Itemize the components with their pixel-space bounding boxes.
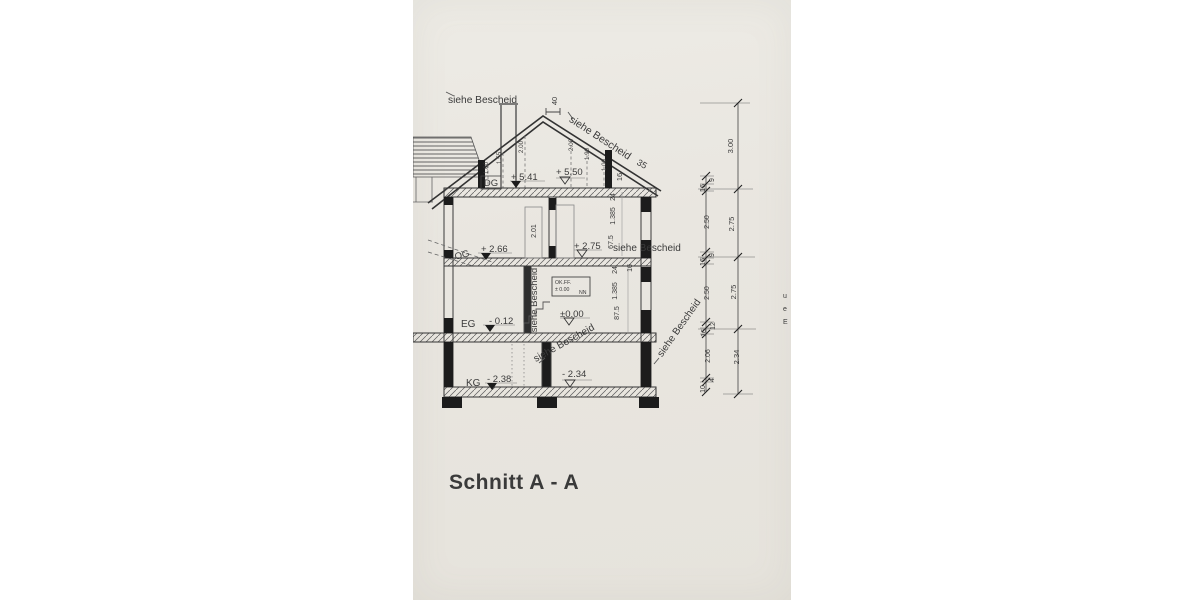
label-siehe-bescheid-stair: siehe Bescheid bbox=[529, 268, 540, 332]
screenshot: siehe Bescheid siehe Bescheid siehe Besc… bbox=[0, 0, 1200, 600]
chain-inner-16c: 16 bbox=[701, 329, 708, 337]
chain-outer-300: 3.00 bbox=[726, 139, 735, 154]
drawing-photo: siehe Bescheid siehe Bescheid siehe Besc… bbox=[413, 0, 791, 600]
chain-inner-9a: 9 bbox=[709, 178, 716, 182]
chain-inner-16b: 16 bbox=[700, 258, 707, 266]
dim-rafter-6: 1.00 bbox=[601, 158, 608, 171]
chain-inner-250a: 2.50 bbox=[704, 215, 711, 229]
chain-inner-10: 10 bbox=[700, 385, 707, 393]
dim-rafter-2: 1.55 bbox=[496, 151, 503, 164]
chain-outer-275b: 2.75 bbox=[729, 285, 738, 300]
chain-outer-275a: 2.75 bbox=[727, 217, 736, 232]
dim-wall-top: 16 bbox=[615, 173, 624, 181]
floor-label-kg: KG bbox=[466, 378, 481, 389]
edge-letter-2: e bbox=[783, 306, 787, 313]
section-drawing: siehe Bescheid siehe Bescheid siehe Besc… bbox=[413, 0, 791, 600]
elevation-eg-right: ±0.00 bbox=[560, 309, 584, 320]
drawing-title: Schnitt A - A bbox=[449, 471, 579, 494]
dim-wall-lower-24: 24 bbox=[612, 266, 619, 274]
datum-line3: NN bbox=[579, 290, 587, 296]
dim-rafter-3: 2.00 bbox=[518, 140, 525, 153]
dim-wall-lower-875: 87.5 bbox=[614, 306, 621, 320]
elevation-og-left: + 2.66 bbox=[481, 244, 508, 255]
label-siehe-bescheid-og: siehe Bescheid bbox=[613, 243, 681, 254]
dim-rafter-5: 1.90 bbox=[584, 147, 591, 160]
dim-wall-upper-1385: 1.385 bbox=[610, 207, 617, 225]
edge-letter-3: E bbox=[783, 319, 788, 326]
datum-line2: ± 0.00 bbox=[555, 287, 569, 293]
chain-outer-234: 2.34 bbox=[732, 350, 741, 365]
chain-inner-4: 4 bbox=[709, 378, 716, 382]
elevation-kg-right: - 2.34 bbox=[562, 369, 586, 380]
chain-inner-250b: 2.50 bbox=[704, 286, 711, 300]
dim-ridge-offset: 40 bbox=[550, 97, 559, 105]
chain-inner-9b: 9 bbox=[709, 253, 716, 257]
marker-kg-right bbox=[565, 380, 575, 387]
elevation-dg-right: + 5.50 bbox=[556, 167, 583, 178]
datum-line1: OK.FF. bbox=[555, 280, 571, 286]
floor-label-eg: EG bbox=[461, 319, 476, 330]
dim-rafter-4: 2.00 bbox=[568, 138, 575, 151]
dim-wall-upper-24: 24 bbox=[610, 193, 617, 201]
label-siehe-bescheid-right-diag: siehe Bescheid bbox=[655, 297, 703, 359]
elevation-eg-left: - 0.12 bbox=[489, 316, 513, 327]
chain-inner-206: 2.06 bbox=[705, 349, 712, 363]
elevation-og-right: + 2.75 bbox=[574, 241, 601, 252]
datum-box-text: OK.FF. ± 0.00 NN bbox=[555, 280, 587, 296]
dim-rafter-1: 1.00 bbox=[483, 161, 490, 174]
dim-wall-lower-1385: 1.385 bbox=[612, 282, 619, 300]
edge-letter-1: u bbox=[783, 293, 787, 300]
label-siehe-bescheid-top: siehe Bescheid bbox=[448, 95, 517, 106]
chain-inner-16a: 16 bbox=[700, 184, 707, 192]
elevation-kg-left: - 2.38 bbox=[487, 374, 511, 385]
floor-label-dg: DG bbox=[484, 178, 498, 189]
elevation-dg-left: + 5.41 bbox=[511, 172, 538, 183]
chain-inner-12: 12 bbox=[710, 322, 717, 330]
dim-wall-upper-675: 67.5 bbox=[608, 235, 615, 249]
dim-door-height: 2.01 bbox=[531, 224, 538, 238]
dim-wall-lower-16: 16 bbox=[627, 264, 634, 272]
dim-eave: 35 bbox=[635, 157, 649, 171]
